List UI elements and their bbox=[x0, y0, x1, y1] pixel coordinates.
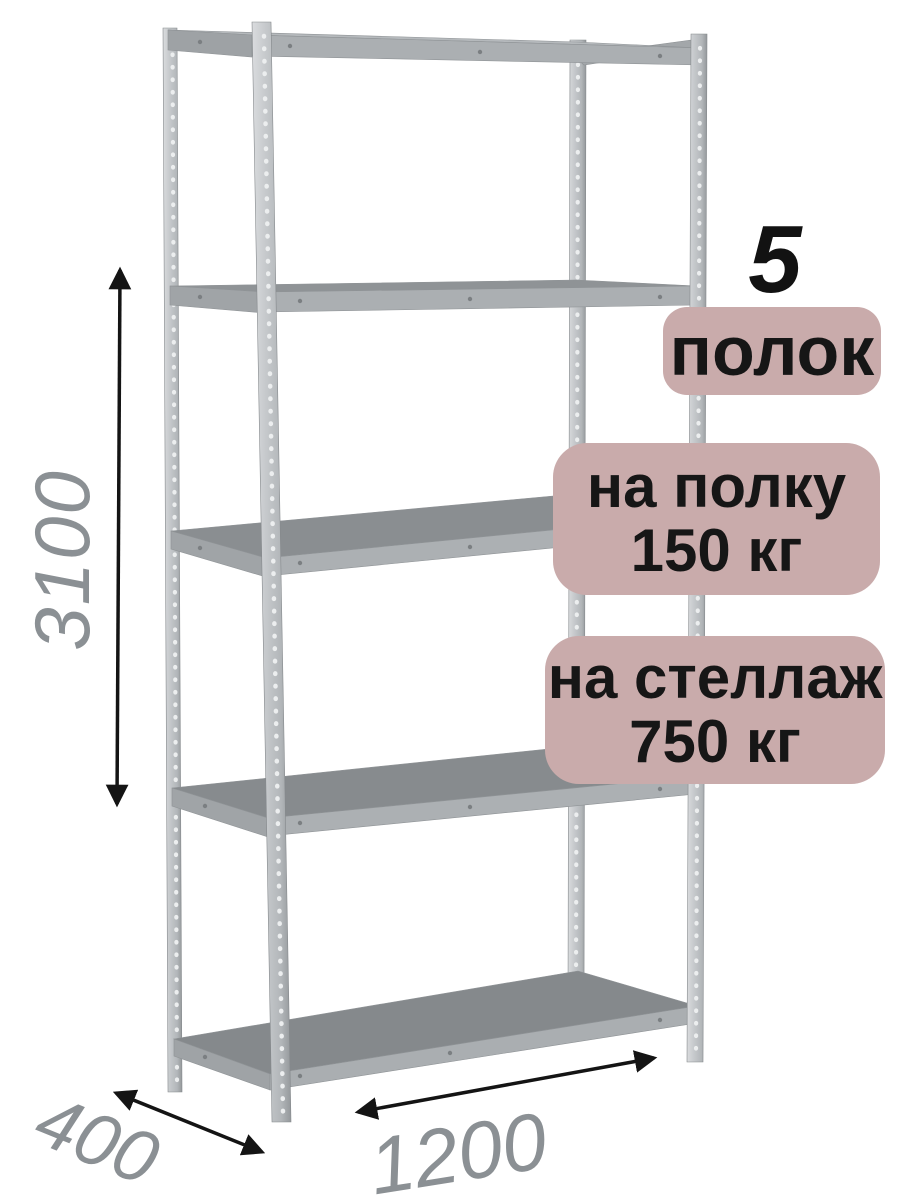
height-arrow-icon bbox=[117, 270, 120, 804]
product-image: 5 полок на полку 150 кг на стеллаж 750 к… bbox=[0, 0, 900, 1200]
rack-load-line1: на стеллаж bbox=[545, 646, 885, 710]
post-back-left bbox=[163, 28, 182, 1092]
shelf-count-badge: полок bbox=[663, 307, 881, 395]
shelf-5 bbox=[168, 30, 702, 65]
shelf-load-line2: 150 кг bbox=[553, 519, 880, 583]
shelf-count-number: 5 bbox=[715, 212, 835, 308]
shelf-load-line1: на полку bbox=[553, 455, 880, 519]
rack-load-badge: на стеллаж 750 кг bbox=[545, 636, 885, 784]
shelf-1 bbox=[174, 971, 697, 1090]
shelving-rack-illustration bbox=[0, 0, 900, 1200]
shelf-4 bbox=[170, 280, 697, 313]
rack-load-line2: 750 кг bbox=[545, 710, 885, 774]
shelf-load-badge: на полку 150 кг bbox=[553, 443, 880, 595]
height-dimension-label: 3100 bbox=[22, 410, 102, 710]
